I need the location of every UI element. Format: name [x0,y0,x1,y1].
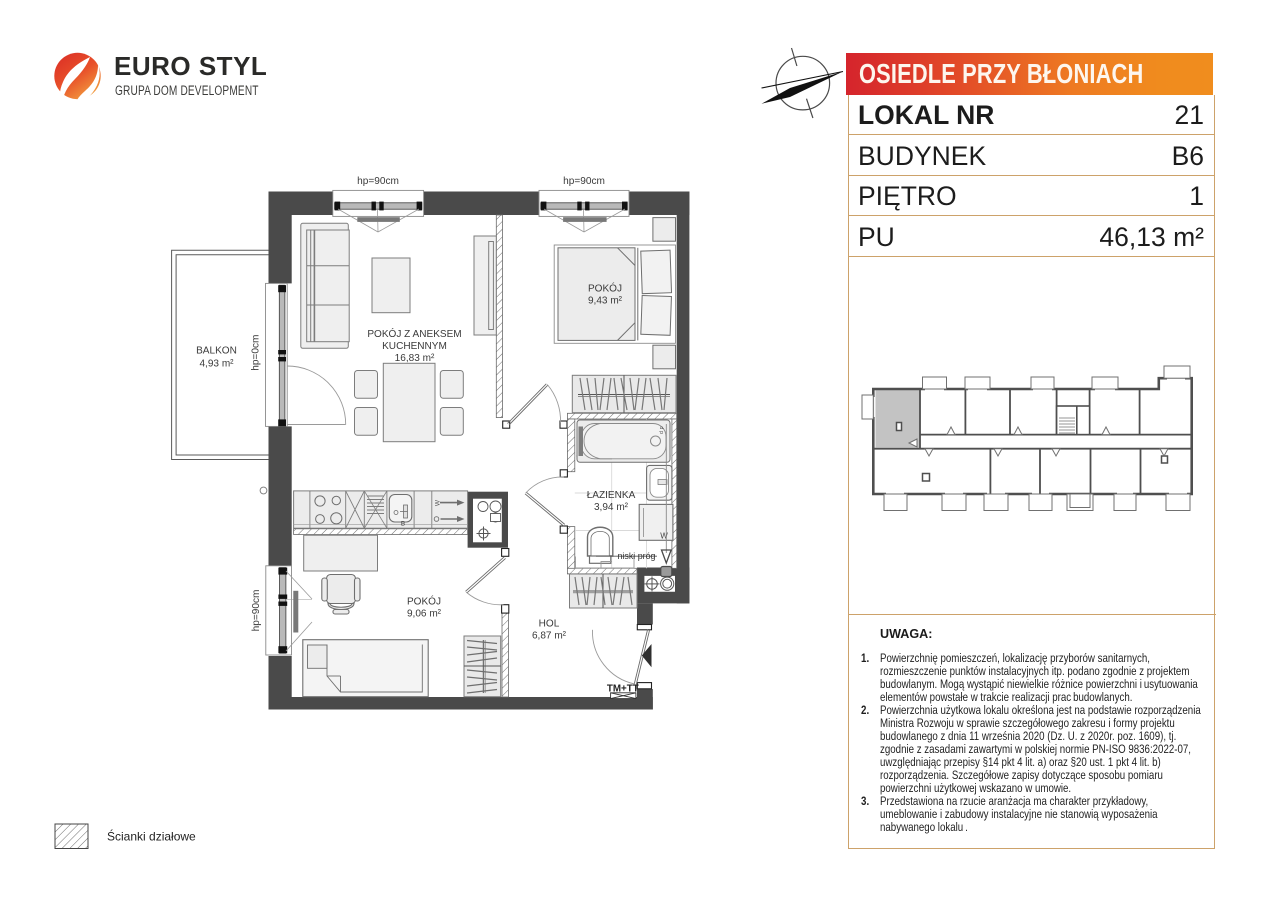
svg-text:HOL: HOL [539,619,560,630]
svg-text:POKÓJ Z ANEKSEM: POKÓJ Z ANEKSEM [367,327,461,340]
svg-text:hp=0cm: hp=0cm [251,335,262,371]
svg-text:Ścianki działowe: Ścianki działowe [107,829,196,844]
svg-text:9,06 m²: 9,06 m² [407,609,442,620]
svg-text:9,43 m²: 9,43 m² [588,296,623,307]
svg-text:6,87 m²: 6,87 m² [532,631,567,642]
svg-text:B: B [401,521,405,528]
svg-text:hp=90cm: hp=90cm [251,590,262,632]
svg-text:W: W [660,532,668,541]
svg-text:hp=90cm: hp=90cm [357,176,399,187]
svg-text:3,94 m²: 3,94 m² [594,502,629,513]
svg-text:4,93 m²: 4,93 m² [199,359,234,370]
svg-text:BALKON: BALKON [196,346,237,357]
svg-text:d p: d p [659,426,665,434]
svg-text:POKÓJ: POKÓJ [588,282,622,295]
svg-text:niski próg: niski próg [618,551,656,561]
svg-text:KUCHENNYM: KUCHENNYM [382,341,447,352]
svg-text:ŁAZIENKA: ŁAZIENKA [587,490,636,501]
svg-text:hp=90cm: hp=90cm [563,176,605,187]
svg-text:16,83 m²: 16,83 m² [395,353,435,364]
svg-text:POKÓJ: POKÓJ [407,595,441,608]
